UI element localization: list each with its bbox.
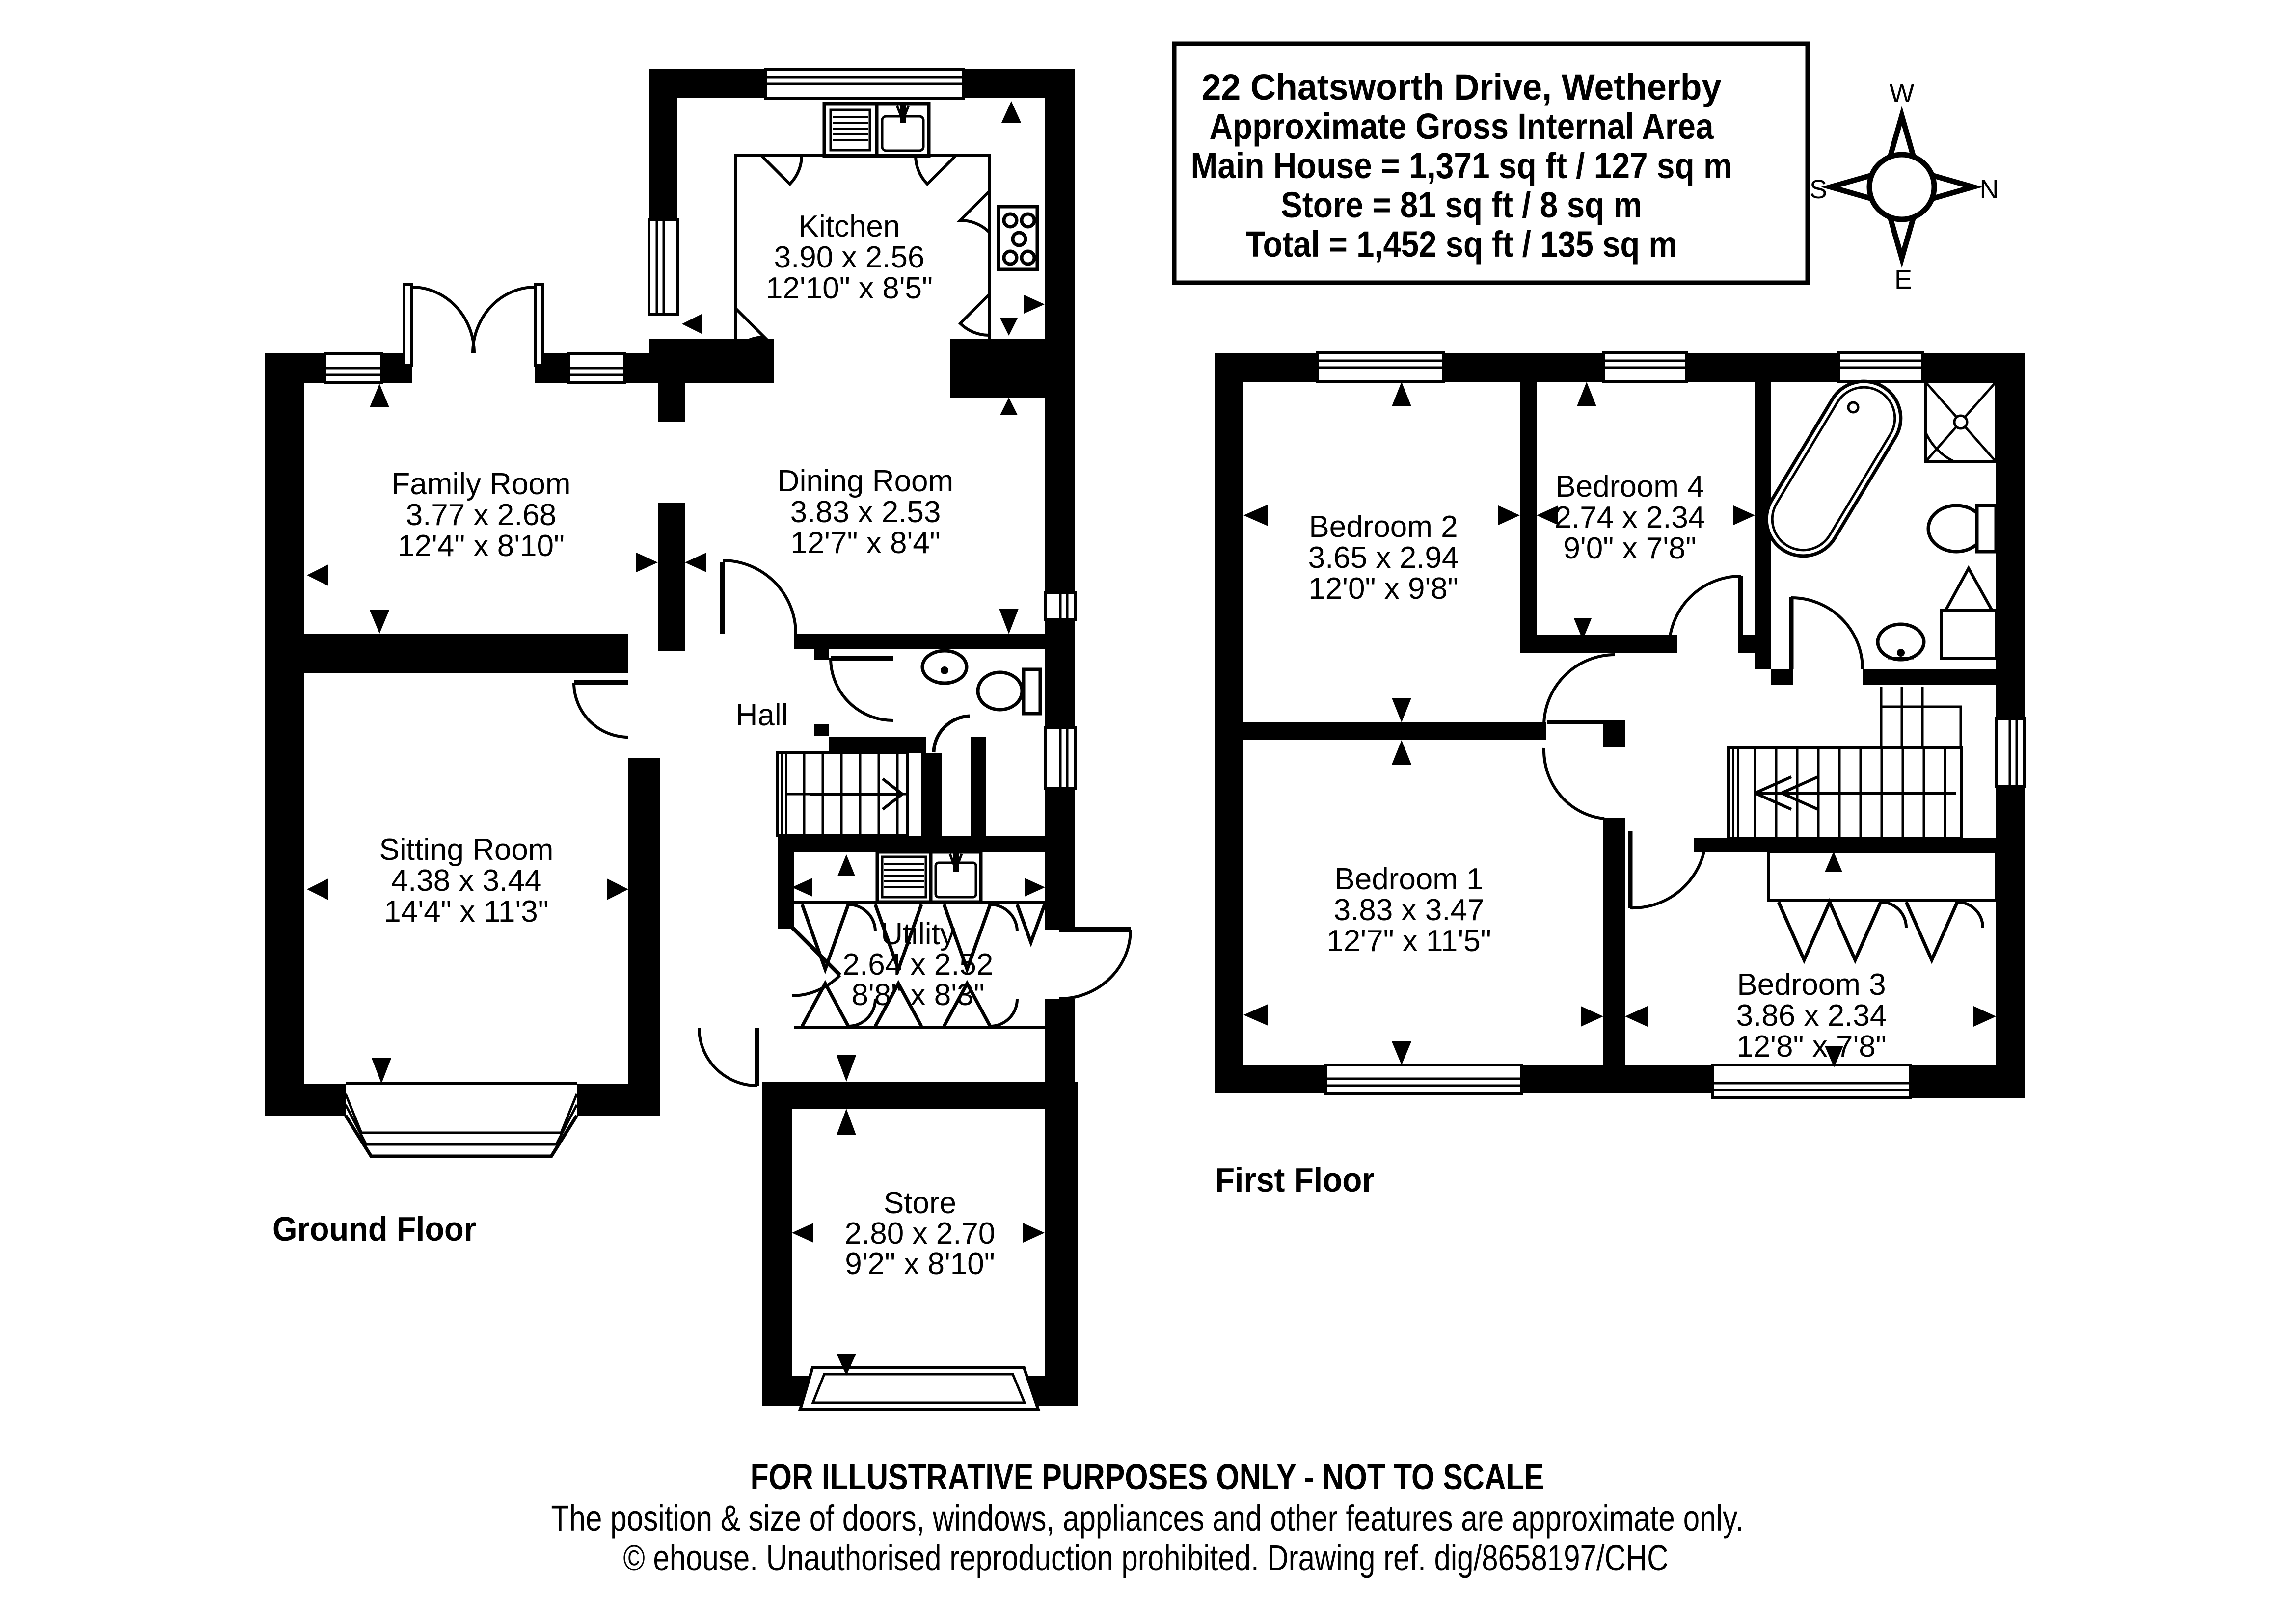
svg-text:9'2" x 8'10": 9'2" x 8'10" [845,1247,995,1281]
svg-text:3.77 x 2.68: 3.77 x 2.68 [406,498,557,532]
svg-text:Store = 81 sq ft / 8 sq m: Store = 81 sq ft / 8 sq m [1281,185,1642,225]
svg-text:Main House = 1,371 sq ft / 127: Main House = 1,371 sq ft / 127 sq m [1191,145,1732,186]
svg-text:8'8" x 8'3": 8'8" x 8'3" [851,978,984,1012]
svg-text:Store: Store [884,1186,956,1220]
svg-text:Hall: Hall [736,698,788,732]
svg-text:12'7" x 11'5": 12'7" x 11'5" [1326,924,1491,958]
svg-text:12'10" x 8'5": 12'10" x 8'5" [766,271,933,305]
svg-text:12'0" x 9'8": 12'0" x 9'8" [1308,572,1459,606]
svg-text:FOR ILLUSTRATIVE PURPOSES ONLY: FOR ILLUSTRATIVE PURPOSES ONLY - NOT TO … [751,1457,1544,1497]
svg-text:N: N [1980,175,1999,204]
svg-text:First Floor: First Floor [1215,1161,1375,1199]
svg-text:12'8" x 7'8": 12'8" x 7'8" [1736,1030,1887,1064]
svg-text:3.65 x 2.94: 3.65 x 2.94 [1308,541,1459,575]
svg-text:Ground Floor: Ground Floor [272,1210,476,1248]
svg-text:Bedroom 3: Bedroom 3 [1737,968,1886,1002]
svg-text:Bedroom 2: Bedroom 2 [1309,510,1458,544]
svg-text:S: S [1810,175,1827,204]
svg-text:2.74 x 2.34: 2.74 x 2.34 [1555,501,1705,534]
svg-text:Approximate Gross Internal Are: Approximate Gross Internal Area [1210,106,1714,147]
svg-text:Family Room: Family Room [391,467,570,501]
svg-text:Dining Room: Dining Room [778,464,953,498]
svg-text:The position & size of doors,: The position & size of doors, windows, a… [551,1498,1744,1539]
svg-text:12'4" x 8'10": 12'4" x 8'10" [398,529,565,563]
svg-text:2.80 x 2.70: 2.80 x 2.70 [845,1217,996,1250]
svg-text:W: W [1890,79,1915,108]
svg-text:Kitchen: Kitchen [799,210,900,243]
svg-text:2.64 x 2.52: 2.64 x 2.52 [843,948,994,982]
svg-text:Sitting Room: Sitting Room [379,833,554,867]
svg-text:E: E [1894,265,1912,294]
svg-text:9'0" x 7'8": 9'0" x 7'8" [1563,532,1696,565]
svg-text:4.38 x 3.44: 4.38 x 3.44 [391,864,542,898]
svg-text:3.83 x 3.47: 3.83 x 3.47 [1334,893,1485,927]
svg-text:3.90 x 2.56: 3.90 x 2.56 [774,240,925,274]
svg-text:Bedroom 4: Bedroom 4 [1555,470,1704,504]
svg-text:Bedroom 1: Bedroom 1 [1334,862,1483,896]
svg-text:12'7" x 8'4": 12'7" x 8'4" [790,526,941,560]
svg-text:Total = 1,452 sq ft / 135 sq m: Total = 1,452 sq ft / 135 sq m [1246,224,1677,265]
svg-text:Utility: Utility [881,917,955,951]
svg-text:3.83 x 2.53: 3.83 x 2.53 [790,495,941,529]
svg-text:© ehouse. Unauthorised reprodu: © ehouse. Unauthorised reproduction proh… [623,1538,1669,1578]
svg-text:22 Chatsworth Drive, Wetherby: 22 Chatsworth Drive, Wetherby [1202,67,1722,107]
svg-text:14'4" x 11'3": 14'4" x 11'3" [384,895,548,929]
svg-text:3.86 x 2.34: 3.86 x 2.34 [1736,999,1887,1033]
